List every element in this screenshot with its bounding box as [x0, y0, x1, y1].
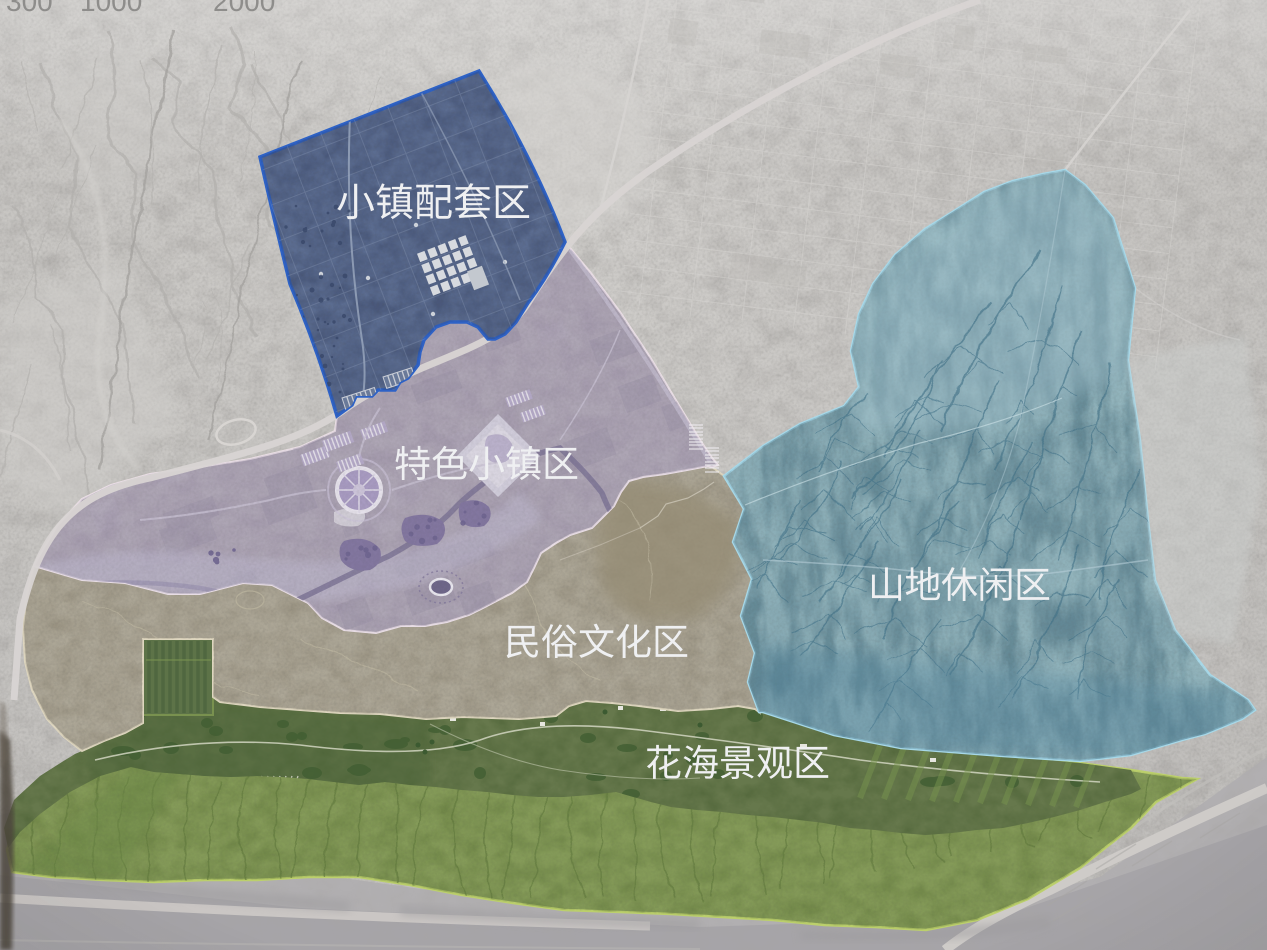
svg-text:2000: 2000 — [213, 0, 275, 17]
svg-text:1000: 1000 — [80, 0, 142, 17]
svg-text:300: 300 — [6, 0, 53, 17]
